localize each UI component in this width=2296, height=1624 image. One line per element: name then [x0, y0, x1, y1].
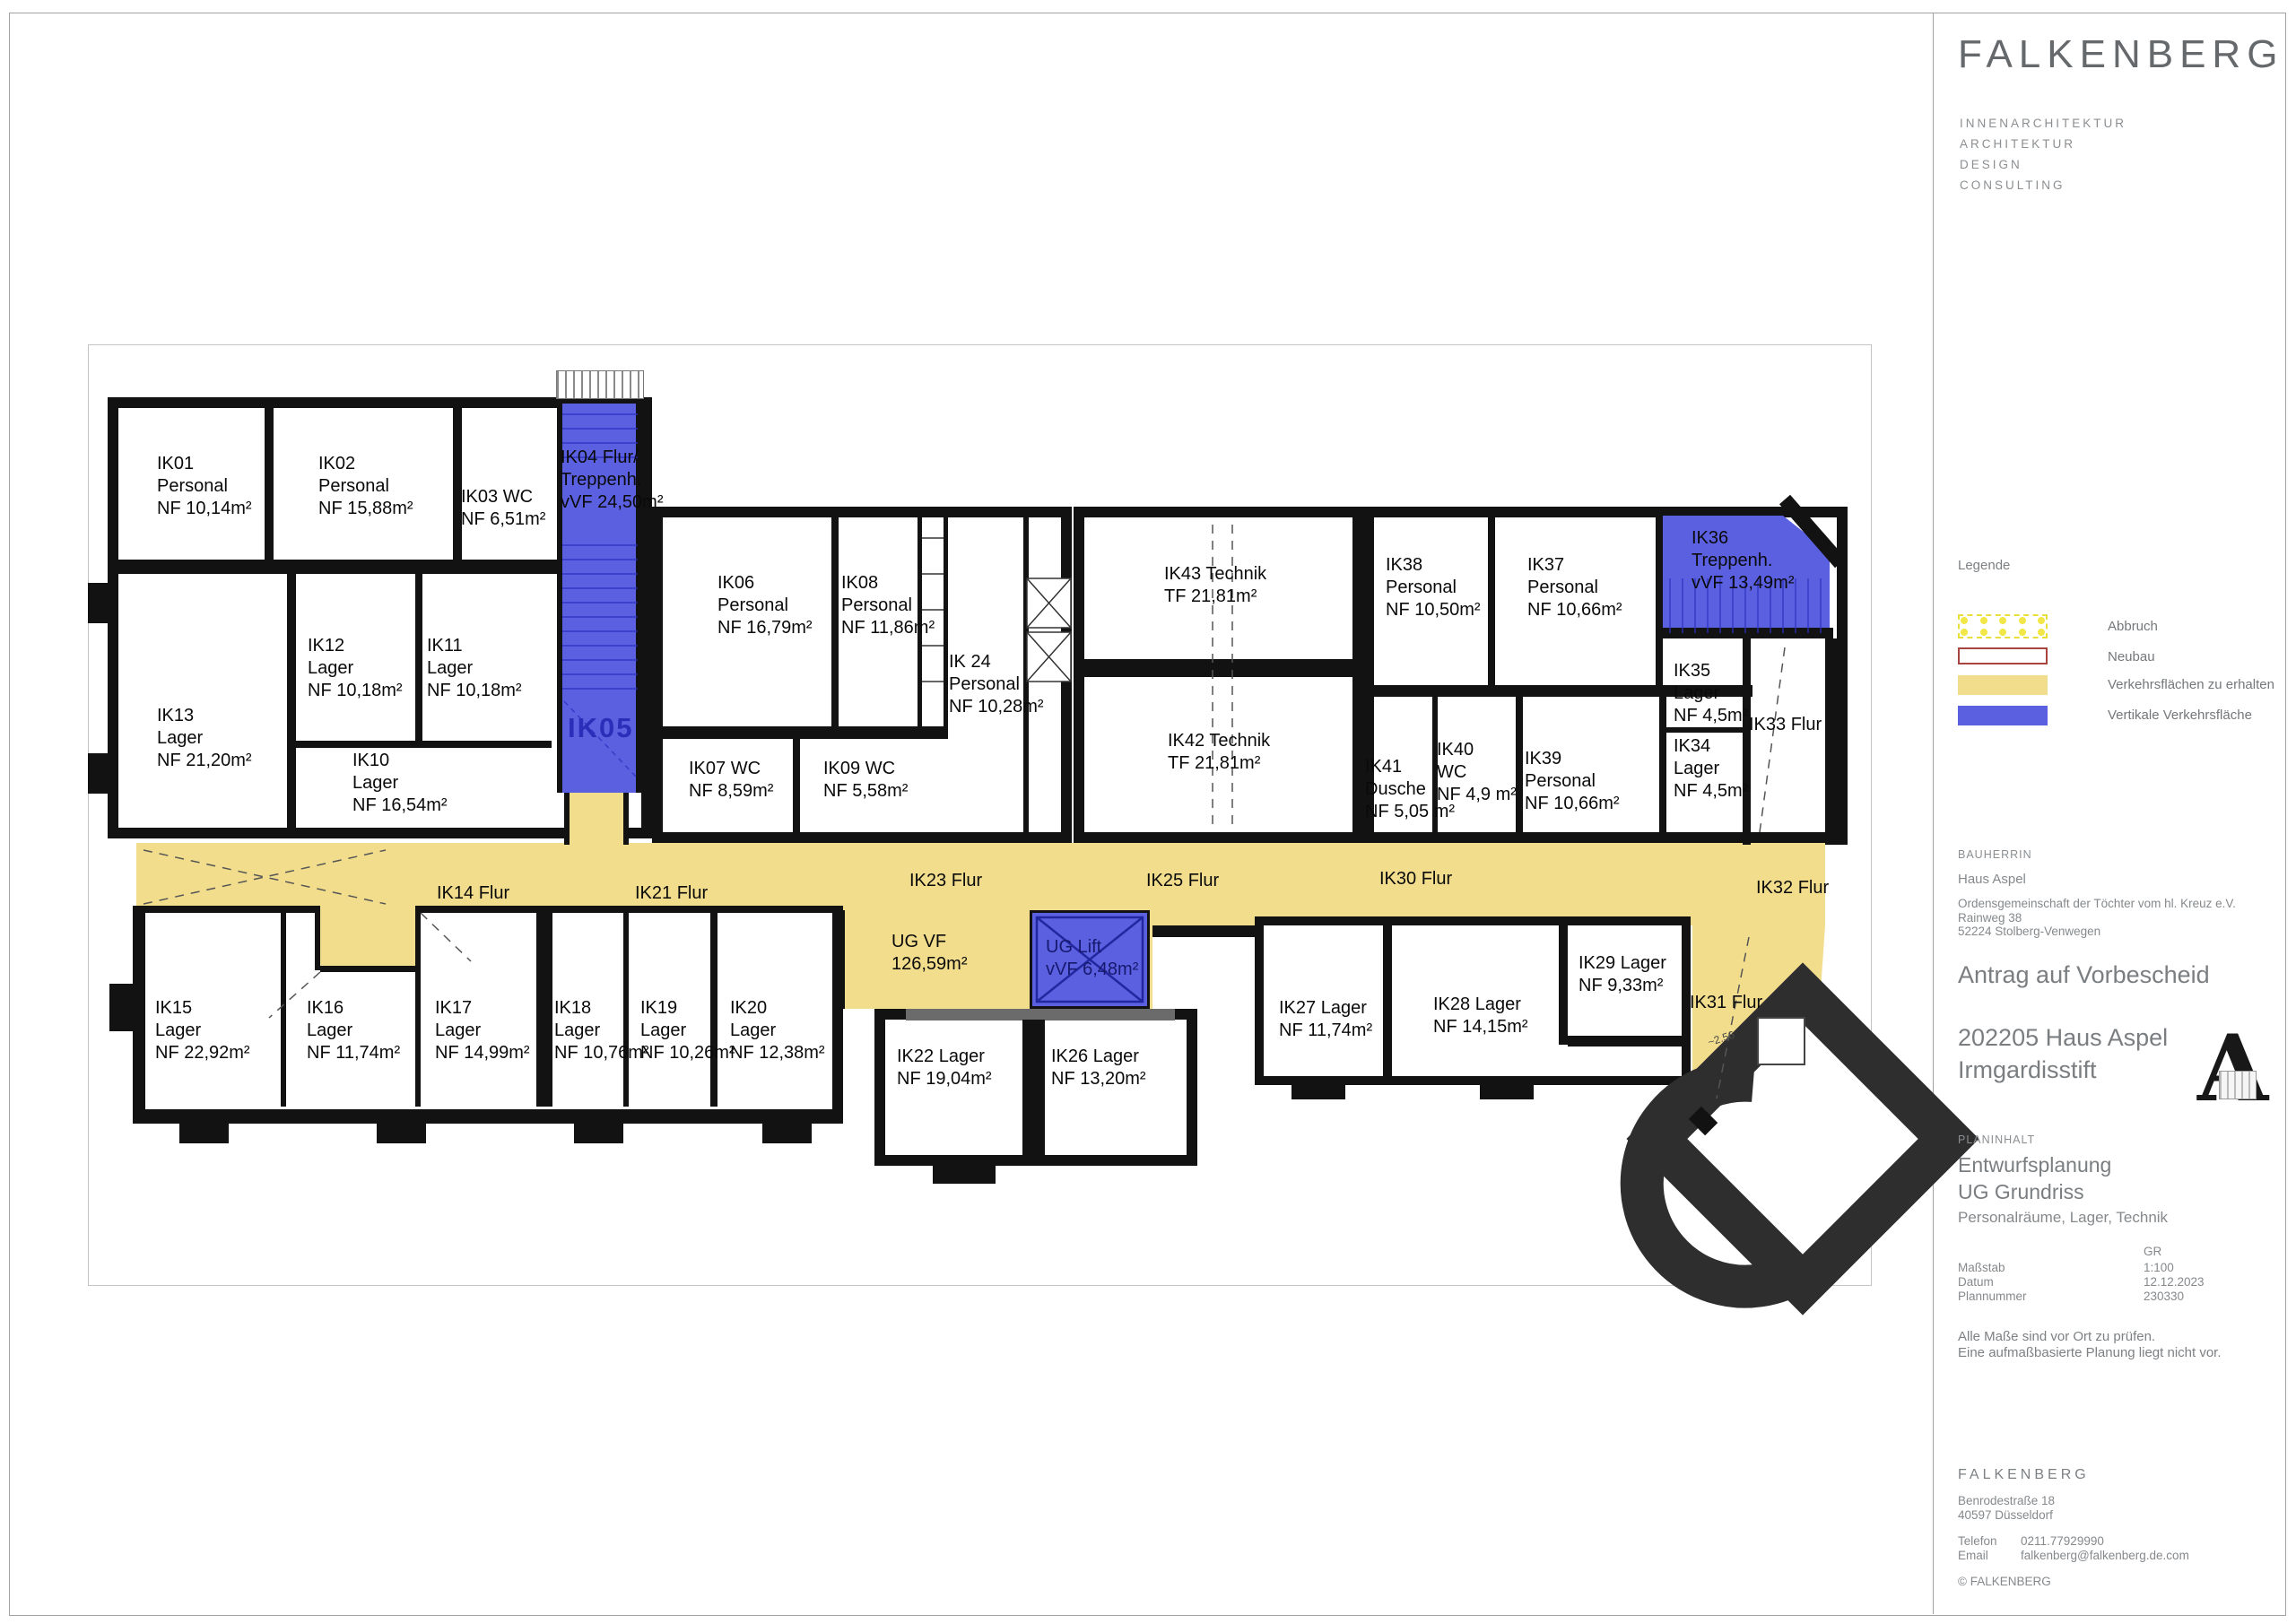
plan-content-line3: Personalräume, Lager, Technik [1958, 1209, 2168, 1227]
footer-contact-value: falkenberg@falkenberg.de.com [2021, 1549, 2189, 1562]
room-label-IK25-flur: IK25 Flur [1146, 870, 1219, 892]
room-label-IK37: IK37 Personal NF 10,66m² [1527, 554, 1622, 621]
footer-address-line: Benrodestraße 18 [1958, 1494, 2055, 1507]
legend-label: Vertikale Verkehrsfläche [2108, 708, 2252, 723]
footer-contact-label: Email [1958, 1549, 1988, 1562]
meta-label: Plannummer [1958, 1290, 2027, 1303]
project-logo-icon: A [2197, 1024, 2268, 1114]
room-label-IK35: IK35 Lager NF 4,5m² [1674, 660, 1748, 727]
room-label-IK20: IK20 Lager NF 12,38m² [730, 997, 825, 1064]
legend-label: Abbruch [2108, 619, 2158, 634]
legend-swatch-vertikal [1958, 706, 2048, 725]
room-label-IK33-flur: IK33 Flur [1749, 714, 1822, 736]
meta-label: Maßstab [1958, 1261, 2005, 1274]
room-label-IK22: IK22 Lager NF 19,04m² [897, 1046, 992, 1090]
plan-content-line1: Entwurfsplanung [1958, 1153, 2111, 1177]
meta-label: Datum [1958, 1275, 1994, 1289]
client-address-line: 52224 Stolberg-Venwegen [1958, 925, 2100, 939]
room-label-UG-VF: UG VF 126,59m² [891, 931, 968, 976]
discipline-line: CONSULTING [1960, 178, 2066, 192]
meta-value: 1:100 [2144, 1261, 2174, 1274]
meta-value: 12.12.2023 [2144, 1275, 2205, 1289]
room-label-IK42: IK42 Technik TF 21,81m² [1168, 730, 1270, 775]
room-label-IK02: IK02 Personal NF 15,88m² [318, 453, 413, 520]
note-line: Eine aufmaßbasierte Planung liegt nicht … [1958, 1345, 2222, 1360]
meta-col-header: GR [2144, 1245, 2161, 1258]
room-label-IK39: IK39 Personal NF 10,66m² [1525, 748, 1620, 815]
room-label-IK18: IK18 Lager NF 10,76m² [554, 997, 649, 1064]
room-label-IK07: IK07 WC NF 8,59m² [689, 758, 773, 803]
room-label-IK26: IK26 Lager NF 13,20m² [1051, 1046, 1146, 1090]
room-label-IK17: IK17 Lager NF 14,99m² [435, 997, 530, 1064]
room-label-IK21-flur: IK21 Flur [635, 882, 708, 905]
client-address-line: Ordensgemeinschaft der Töchter vom hl. K… [1958, 897, 2236, 911]
room-label-IK12: IK12 Lager NF 10,18m² [308, 635, 403, 702]
legend-swatch-abbruch [1958, 614, 2048, 638]
room-label-IK40: IK40 WC NF 4,9 m² [1437, 739, 1517, 806]
discipline-line: INNENARCHITEKTUR [1960, 117, 2126, 130]
client-heading: BAUHERRIN [1958, 848, 2032, 861]
project-title-line2: Irmgardisstift [1958, 1056, 2097, 1084]
room-label-IK34: IK34 Lager NF 4,5m² [1674, 735, 1748, 803]
footer-firm-name: FALKENBERG [1958, 1467, 2090, 1483]
firm-logo: FALKENBERG [1958, 32, 2283, 77]
footer-copyright: © FALKENBERG [1958, 1575, 2051, 1588]
plan-content-heading: PLANINHALT [1958, 1133, 2035, 1146]
room-label-IK15: IK15 Lager NF 22,92m² [155, 997, 250, 1064]
room-label-IK23-flur: IK23 Flur [909, 870, 982, 892]
footer-contact-value: 0211.77929990 [2021, 1534, 2104, 1548]
note-line: Alle Maße sind vor Ort zu prüfen. [1958, 1329, 2155, 1344]
project-title-line1: 202205 Haus Aspel [1958, 1024, 2168, 1052]
legend-swatch-verkehrsflaechen [1958, 675, 2048, 695]
room-label-UG-Lift: UG Lift vVF 6,48m² [1046, 936, 1138, 981]
room-label-IK01: IK01 Personal NF 10,14m² [157, 453, 252, 520]
falkenberg-plan-page: { "title_block": { "logo": "FALKENBERG",… [0, 0, 2296, 1624]
room-label-IK04: IK04 Flur/ Treppenh. vVF 24,50m² [561, 447, 663, 514]
room-label-IK29: IK29 Lager NF 9,33m² [1578, 952, 1666, 997]
meta-value: 230330 [2144, 1290, 2184, 1303]
room-label-IK31-flur: IK31 Flur [1690, 992, 1762, 1014]
room-label-IK24: IK 24 Personal NF 10,28m² [949, 651, 1044, 718]
client-name: Haus Aspel [1958, 872, 2026, 887]
room-label-IK08: IK08 Personal NF 11,86m² [841, 572, 935, 639]
legend-swatch-neubau [1958, 647, 2048, 664]
footer-address-line: 40597 Düsseldorf [1958, 1508, 2053, 1522]
room-label-IK09: IK09 WC NF 5,58m² [823, 758, 908, 803]
room-label-IK32-flur: IK32 Flur [1756, 877, 1829, 899]
room-label-IK19: IK19 Lager NF 10,26m² [640, 997, 735, 1064]
legend-label: Verkehrsflächen zu erhalten [2108, 677, 2274, 692]
room-label-IK05: IK05 [568, 714, 633, 742]
client-address-line: Rainweg 38 [1958, 911, 2022, 925]
application-title: Antrag auf Vorbescheid [1958, 961, 2210, 989]
room-label-IK03: IK03 WC NF 6,51m² [461, 486, 545, 531]
room-label-IK16: IK16 Lager NF 11,74m² [307, 997, 400, 1064]
room-label-IK14-flur: IK14 Flur [437, 882, 509, 905]
legend-label: Neubau [2108, 649, 2155, 664]
room-label-IK13: IK13 Lager NF 21,20m² [157, 705, 252, 772]
room-label-IK28: IK28 Lager NF 14,15m² [1433, 994, 1528, 1038]
room-label-IK36: IK36 Treppenh. vVF 13,49m² [1692, 527, 1794, 595]
room-label-IK27: IK27 Lager NF 11,74m² [1279, 997, 1372, 1042]
discipline-line: DESIGN [1960, 158, 2022, 171]
room-label-IK10: IK10 Lager NF 16,54m² [352, 750, 448, 817]
room-label-IK43: IK43 Technik TF 21,81m² [1164, 563, 1266, 608]
footer-contact-label: Telefon [1958, 1534, 1997, 1548]
room-label-IK30-flur: IK30 Flur [1379, 868, 1452, 890]
room-label-layer: IK01 Personal NF 10,14m²IK02 Personal NF… [0, 0, 2296, 1624]
room-label-IK38: IK38 Personal NF 10,50m² [1386, 554, 1481, 621]
room-label-IK06: IK06 Personal NF 16,79m² [717, 572, 813, 639]
room-label-IK11: IK11 Lager NF 10,18m² [427, 635, 522, 702]
discipline-line: ARCHITEKTUR [1960, 137, 2075, 151]
legend-title: Legende [1958, 558, 2010, 573]
room-label-dim-256: ~2.56 [1705, 1024, 1738, 1054]
plan-content-line2: UG Grundriss [1958, 1180, 2084, 1204]
